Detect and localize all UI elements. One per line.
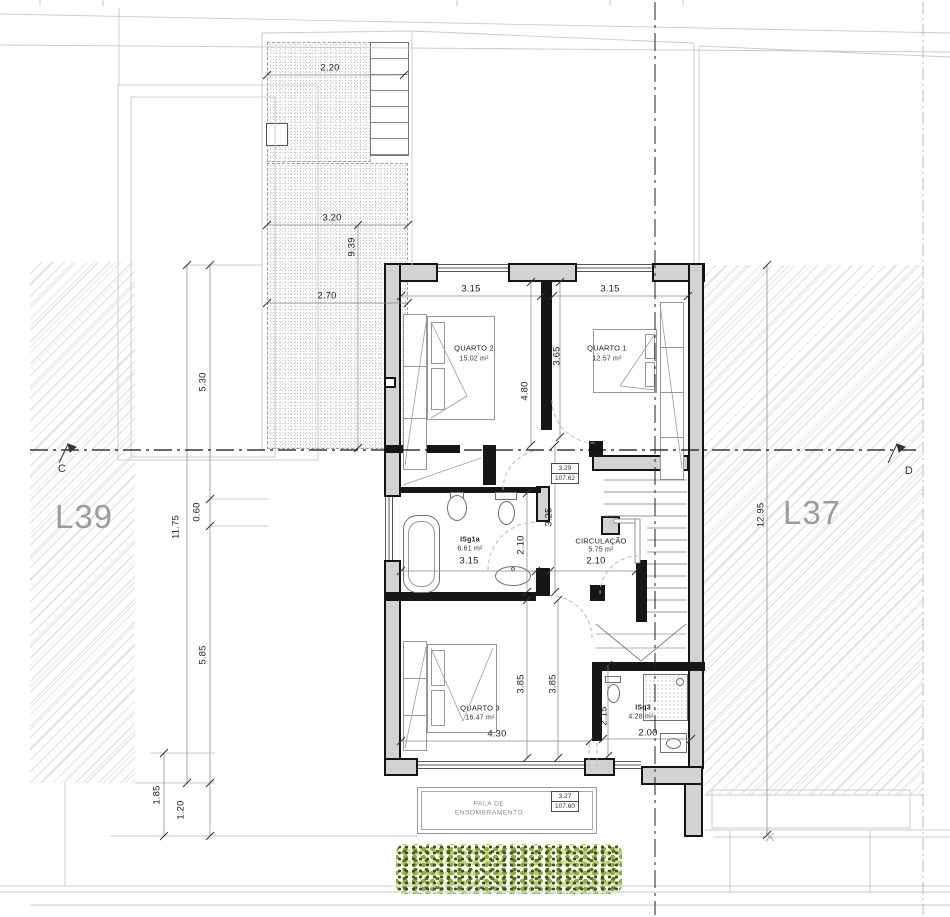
- section-label-d: D: [905, 465, 913, 477]
- level-abs-value: 107.60: [551, 801, 579, 812]
- dim-left-a: 5.30: [198, 372, 209, 391]
- room-label-q2: QUARTO 2: [454, 344, 494, 353]
- room-area-q1: 12.57 m²: [592, 356, 621, 363]
- dim-isg-height: 2.10: [516, 535, 527, 554]
- dim-isg-width: 3.15: [459, 556, 478, 567]
- dim-right-total: 12.95: [756, 503, 767, 528]
- dim-left-total: 11.75: [171, 515, 182, 539]
- room-label-q3: QUARTO 3: [460, 704, 500, 713]
- dim-q1-height: 3.65: [552, 346, 563, 365]
- dim-hall-height: 3.25: [544, 507, 555, 526]
- dimension-ticks: [160, 71, 771, 840]
- dim-left-b: 0.60: [192, 502, 203, 521]
- dim-q3-height-2: 3.85: [548, 674, 559, 693]
- room-area-isg1a: 6.61 m²: [457, 546, 482, 553]
- level-marker-circulacao: 3.29 107.62: [551, 464, 579, 484]
- room-area-q3: 16.47 m²: [465, 715, 494, 722]
- section-label-c: C: [58, 463, 66, 475]
- dim-isq3-height: 2.15: [599, 706, 610, 725]
- dimension-lines: [164, 75, 767, 836]
- parcel-label-l39: L39: [55, 498, 113, 536]
- dim-left-d: 1.85: [152, 785, 163, 804]
- level-marker-pala: 3.27 107.60: [551, 792, 579, 812]
- room-area-circulacao: 5.75 m²: [588, 547, 613, 554]
- room-area-q2: 15.02 m²: [459, 356, 488, 363]
- dim-q2-height: 4.80: [520, 381, 531, 400]
- dim-patio-top: 2.20: [320, 63, 339, 74]
- room-label-circulacao: CIRCULAÇÃO: [575, 537, 626, 546]
- dim-isq3-width: 2.00: [638, 728, 657, 739]
- faint-site-lines: [0, 0, 950, 905]
- floor-plan-canvas: L39 L37 C D 2.20 3.20 9.39 2.70 5.30 0.6…: [0, 0, 950, 917]
- room-label-isq3: ISq3: [635, 705, 651, 712]
- room-label-isg1a: ISg1a: [460, 537, 480, 544]
- room-label-q1: QUARTO 1: [587, 344, 627, 353]
- drawing-lines-layer: [0, 0, 950, 917]
- pala-label-line1: PALA DE: [474, 801, 505, 808]
- dim-patio-low: 2.70: [317, 291, 336, 302]
- parcel-label-l37: L37: [783, 494, 841, 532]
- dim-left-c: 5.85: [198, 645, 209, 664]
- room-area-isq3: 4.28 m²: [628, 714, 653, 721]
- dim-left-e: 1.20: [176, 800, 187, 819]
- pala-label-line2: ENSOMBRAMENTO: [455, 810, 523, 817]
- dim-q3-height-1: 3.85: [516, 674, 527, 693]
- dim-q3-width: 4.30: [487, 729, 506, 740]
- dim-patio-depth: 9.39: [347, 237, 358, 256]
- dim-corridor-width: 2.10: [586, 556, 605, 567]
- dim-q2-width: 3.15: [461, 284, 480, 295]
- door-arcs: [488, 400, 638, 767]
- level-abs-value: 107.62: [551, 473, 579, 484]
- dim-patio-mid: 3.20: [322, 213, 341, 224]
- dim-q1-width: 3.15: [600, 284, 619, 295]
